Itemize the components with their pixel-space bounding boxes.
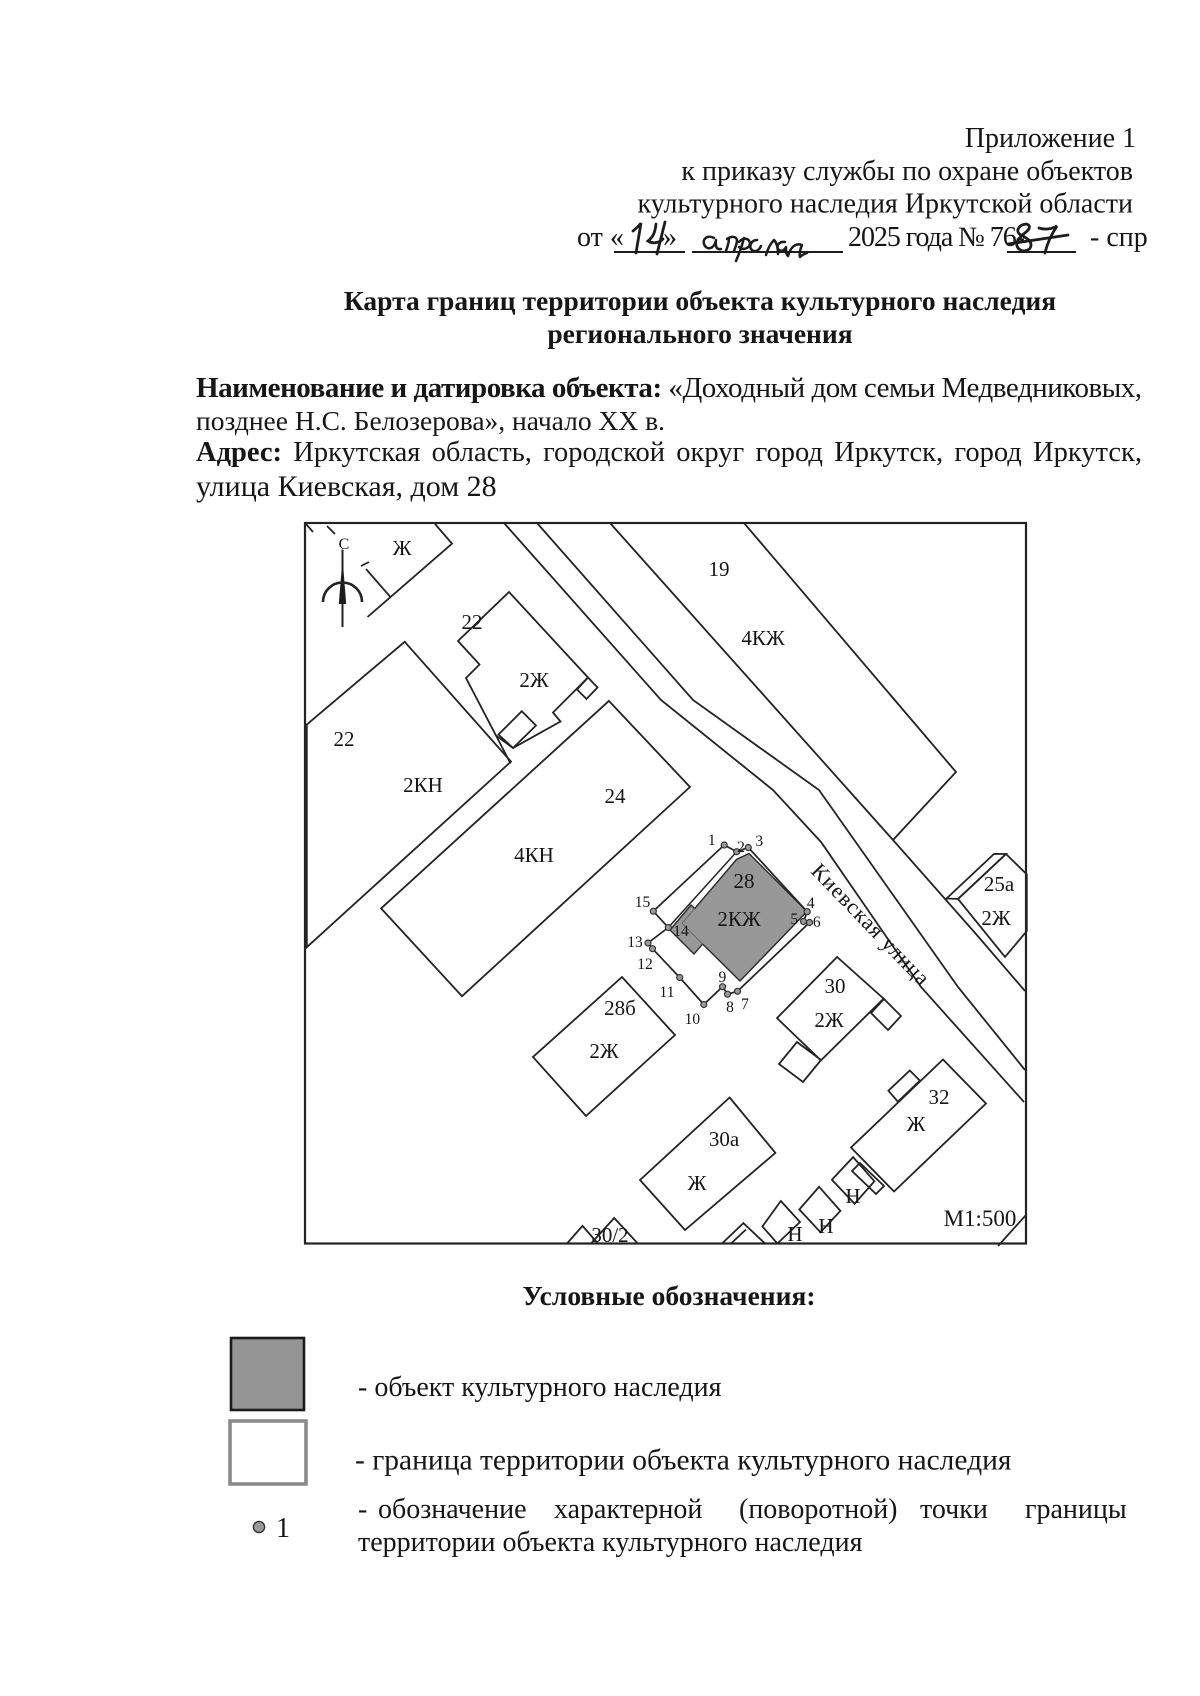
svg-text:1: 1 bbox=[276, 1513, 290, 1544]
svg-text:- граница территории объекта к: - граница территории объекта культурного… bbox=[355, 1445, 1012, 1477]
svg-text:30а: 30а bbox=[709, 1127, 740, 1151]
svg-text:от «: от « bbox=[577, 222, 624, 253]
svg-text:Н: Н bbox=[818, 1214, 833, 1238]
svg-text:Н: Н bbox=[845, 1184, 860, 1208]
svg-text:обозначение: обозначение bbox=[378, 1494, 527, 1525]
svg-text:- спр: - спр bbox=[1090, 222, 1148, 253]
svg-text:Ж: Ж bbox=[393, 536, 412, 560]
svg-text:улица Киевская, дом 28: улица Киевская, дом 28 bbox=[196, 470, 497, 503]
svg-text:8: 8 bbox=[726, 999, 734, 1016]
svg-text:(поворотной): (поворотной) bbox=[739, 1494, 898, 1525]
svg-text:5: 5 bbox=[790, 911, 798, 928]
svg-text:24: 24 bbox=[605, 784, 627, 808]
svg-text:4КН: 4КН bbox=[514, 843, 554, 867]
svg-text:11: 11 bbox=[660, 984, 675, 1001]
svg-text:2Ж: 2Ж bbox=[589, 1039, 619, 1063]
svg-text:2Ж: 2Ж bbox=[814, 1008, 844, 1032]
svg-text:22: 22 bbox=[462, 610, 483, 634]
svg-text:Карта границ территории объект: Карта границ территории объекта культурн… bbox=[344, 285, 1056, 316]
svg-text:М1:500: М1:500 bbox=[944, 1206, 1017, 1231]
svg-text:2КЖ: 2КЖ bbox=[717, 907, 761, 931]
svg-text:Киевская улица: Киевская улица bbox=[806, 858, 935, 991]
svg-text:7: 7 bbox=[741, 996, 749, 1013]
svg-text:2Ж: 2Ж bbox=[981, 906, 1011, 930]
svg-text:2025 года № 76-: 2025 года № 76- bbox=[848, 222, 1025, 253]
svg-text:регионального значения: регионального значения bbox=[547, 318, 852, 349]
svg-text:28: 28 bbox=[734, 869, 755, 893]
svg-text:территории объекта культурного: территории объекта культурного наследия bbox=[358, 1527, 863, 1558]
svg-text:1: 1 bbox=[708, 832, 716, 849]
svg-text:28б: 28б bbox=[604, 996, 636, 1020]
svg-text:- объект культурного наследия: - объект культурного наследия bbox=[358, 1372, 722, 1403]
svg-text:25а: 25а bbox=[984, 872, 1015, 896]
svg-text:2Ж: 2Ж bbox=[519, 668, 549, 692]
svg-text:С: С bbox=[339, 536, 350, 553]
svg-text:характерной: характерной bbox=[554, 1494, 702, 1525]
svg-text:культурного наследия Иркутской: культурного наследия Иркутской области bbox=[638, 189, 1133, 220]
svg-text:30: 30 bbox=[825, 974, 846, 998]
svg-text:4: 4 bbox=[807, 895, 815, 912]
svg-text:Н: Н bbox=[787, 1222, 802, 1246]
svg-text:позднее Н.С. Белозерова», нача: позднее Н.С. Белозерова», начало XX в. bbox=[196, 405, 665, 436]
svg-text:-: - bbox=[358, 1494, 367, 1525]
svg-text:32: 32 bbox=[929, 1085, 950, 1109]
svg-text:19: 19 bbox=[709, 557, 730, 581]
svg-text:Ж: Ж bbox=[688, 1171, 707, 1195]
svg-text:9: 9 bbox=[719, 969, 727, 986]
svg-text:3: 3 bbox=[755, 833, 763, 850]
svg-text:14: 14 bbox=[673, 923, 689, 940]
svg-text:12: 12 bbox=[637, 956, 653, 973]
svg-text:Наименование и датировка объек: Наименование и датировка объекта: «Доход… bbox=[196, 372, 1142, 404]
svg-text:2КН: 2КН bbox=[403, 773, 443, 797]
svg-text:6: 6 bbox=[813, 914, 821, 931]
svg-text:2: 2 bbox=[737, 839, 745, 856]
svg-text:30/2: 30/2 bbox=[591, 1223, 628, 1247]
svg-text:15: 15 bbox=[635, 894, 651, 911]
svg-text:13: 13 bbox=[627, 934, 643, 951]
svg-text:Условные обозначения:: Условные обозначения: bbox=[522, 1280, 815, 1311]
svg-text:к приказу службы по охране объ: к приказу службы по охране объектов bbox=[681, 156, 1133, 187]
svg-text:границы: границы bbox=[1025, 1494, 1127, 1525]
svg-text:10: 10 bbox=[685, 1011, 701, 1028]
svg-text:Приложение 1: Приложение 1 bbox=[965, 123, 1136, 154]
svg-text:22: 22 bbox=[334, 727, 355, 751]
svg-text:Ж: Ж bbox=[907, 1112, 926, 1136]
svg-text:4КЖ: 4КЖ bbox=[741, 626, 785, 650]
svg-text:точки: точки bbox=[920, 1494, 988, 1525]
